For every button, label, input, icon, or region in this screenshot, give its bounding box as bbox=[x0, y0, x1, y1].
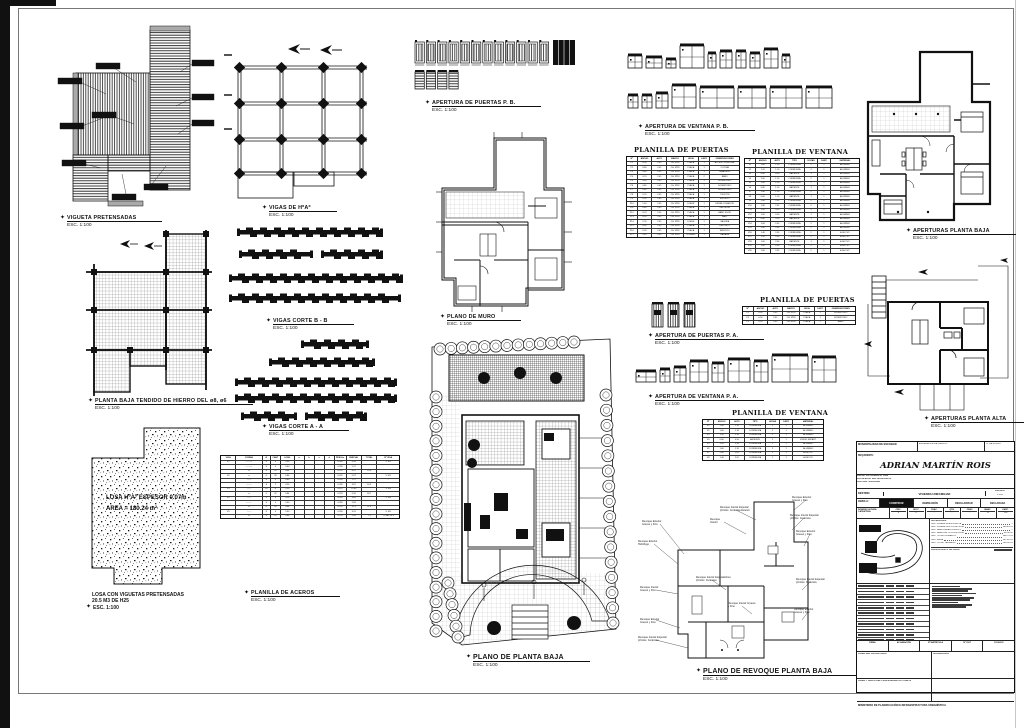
table-cell: ALUMINIO bbox=[830, 209, 859, 213]
table-cell: 8 bbox=[262, 483, 270, 487]
drawing-sheet: ✦ VIGUETA PRETENSADAS ESC. 1:100 ✦ VIGAS… bbox=[0, 0, 1024, 728]
table-cell: P14 bbox=[627, 220, 637, 224]
table-cell: 2 bbox=[765, 447, 779, 451]
table-cell: 0.50 bbox=[729, 438, 744, 442]
table-cell: ALUMINIO bbox=[830, 186, 859, 190]
table-cell bbox=[304, 479, 314, 483]
table-cell bbox=[314, 497, 324, 501]
caption-title: VIGAS CORTE B - B bbox=[273, 318, 354, 325]
table-cell bbox=[314, 506, 324, 510]
table-cell: 1 bbox=[817, 240, 830, 244]
table-cell: SERVICIO bbox=[709, 229, 739, 233]
proyectista-label: FIRMA Y SELLO DEL PROFESIONAL ACTUANTE bbox=[858, 680, 930, 683]
table-cell: CORREDIZA bbox=[744, 434, 766, 438]
marker-icon: ✦ bbox=[425, 100, 430, 106]
table-cell: P13 bbox=[627, 216, 637, 220]
caption-aperturas-pb: ✦ APERTURAS PLANTA BAJA ESC. 1:100 bbox=[906, 228, 1016, 241]
table-cell: 6 bbox=[262, 506, 270, 510]
revoque-annotation: Revoque Interior Especial p/Coloc. Cerám… bbox=[720, 506, 750, 512]
table-cell: 1 bbox=[814, 321, 826, 325]
table-cell: 1 bbox=[698, 216, 710, 220]
table-cell: 0.80 bbox=[637, 184, 652, 188]
marker-icon: ✦ bbox=[262, 205, 267, 211]
table-cell bbox=[361, 501, 376, 505]
table-cell: BATIENTE bbox=[784, 173, 804, 177]
table-cell bbox=[361, 465, 376, 469]
table-cell: ACCESO PRINCIPAL bbox=[709, 162, 739, 166]
obra-option-construir: CONSTRUIR bbox=[880, 499, 914, 507]
table-cell: 2 bbox=[804, 249, 817, 253]
apertura-puertas-pb bbox=[413, 36, 583, 96]
caption-aperturas-pa: ✦ APERTURAS PLANTA ALTA ESC. 1:100 bbox=[924, 416, 1024, 429]
table-cell: 0.60 bbox=[755, 195, 770, 199]
plano-planta-baja-site bbox=[424, 333, 624, 651]
table-cell bbox=[324, 470, 334, 474]
table-cell: CH. Nº18 bbox=[782, 312, 799, 316]
table-cell: 1.60 bbox=[755, 164, 770, 168]
table-cell: 1 bbox=[817, 231, 830, 235]
table-cell bbox=[314, 515, 324, 519]
planilla-ventana-pa-table: NºANCHOALTOTIPOHOJASCANT.MATERIALV11.601… bbox=[702, 419, 824, 461]
table-cell: TOTAL 69.3 bbox=[376, 515, 399, 519]
caption-title: PLANTA BAJA TENDIDO DE HIERRO DEL ø8, ø6 bbox=[95, 398, 253, 405]
table-cell: V9 bbox=[745, 200, 755, 204]
municipality-label: MUNICIPALIDAD DE ESCOBAR bbox=[857, 442, 918, 451]
table-cell: 1 bbox=[779, 447, 793, 451]
table-cell: 0.90 bbox=[637, 216, 652, 220]
table-cell: 1.10 bbox=[770, 168, 784, 172]
table-cell: 6 bbox=[262, 474, 270, 478]
table-cell: CH. Nº18 bbox=[666, 171, 683, 175]
table-cell: 1 bbox=[698, 162, 710, 166]
table-header-cell: HOJA bbox=[683, 157, 698, 161]
table-cell: 0.80 bbox=[637, 225, 652, 229]
caption-title: APERTURA DE VENTANA P. A. bbox=[655, 394, 764, 401]
table-cell: ALUMINIO bbox=[830, 227, 859, 231]
table-cell bbox=[324, 461, 334, 465]
table-cell: P9 bbox=[627, 198, 637, 202]
table-cell bbox=[314, 510, 324, 514]
table-cell bbox=[324, 483, 334, 487]
table-cell: 4 bbox=[270, 510, 280, 514]
table-cell: 0.90 bbox=[753, 316, 768, 320]
table-cell: V6 bbox=[745, 186, 755, 190]
table-header-cell: Nº VIGA bbox=[376, 456, 399, 460]
table-cell: 2 bbox=[765, 443, 779, 447]
table-header-cell: HOJAS bbox=[804, 159, 817, 163]
planilla-ventana-pa-title: PLANILLA DE VENTANA bbox=[732, 409, 828, 417]
table-cell: ⌐——⌐ bbox=[235, 465, 261, 469]
table-cell: V7 bbox=[703, 452, 713, 456]
table-cell: 1 bbox=[817, 209, 830, 213]
nomenclatura-cell: SECC.F bbox=[908, 508, 926, 518]
table-cell: CH. Nº18 bbox=[666, 180, 683, 184]
table-cell: ALUMINIO bbox=[830, 200, 859, 204]
table-cell: CH. Nº18 bbox=[666, 189, 683, 193]
table-cell: 8 bbox=[262, 465, 270, 469]
table-cell bbox=[294, 510, 304, 514]
table-cell: V5 bbox=[703, 443, 713, 447]
caption-scale: ESC. 1:100 bbox=[67, 223, 162, 228]
table-cell: 1.10 bbox=[729, 434, 744, 438]
nomenclatura-cell: CHAC.- bbox=[926, 508, 944, 518]
table-cell bbox=[294, 492, 304, 496]
table-cell: 2.60 bbox=[280, 510, 294, 514]
table-cell bbox=[294, 461, 304, 465]
table-cell: 1.10 bbox=[770, 182, 784, 186]
table-cell: CORREDIZA bbox=[784, 245, 804, 249]
table-cell: 1 bbox=[779, 434, 793, 438]
table-cell: V11 bbox=[745, 209, 755, 213]
table-cell bbox=[304, 465, 314, 469]
table-cell: CORREDIZA bbox=[744, 452, 766, 456]
caption-scale: ESC. 1:100 bbox=[269, 213, 337, 218]
table-cell: 2.05 bbox=[651, 162, 666, 166]
table-cell: ALUMINIO bbox=[792, 425, 823, 429]
table-cell: V2 bbox=[221, 474, 235, 478]
table-cell bbox=[324, 465, 334, 469]
table-cell: PLACA bbox=[683, 193, 698, 197]
table-cell: CORREDIZA bbox=[784, 236, 804, 240]
table-cell: ... bbox=[376, 501, 399, 505]
table-cell: 1.20 bbox=[713, 434, 729, 438]
firma-header: FIRMA bbox=[857, 641, 889, 651]
table-cell bbox=[221, 465, 235, 469]
table-cell: 16.3 bbox=[361, 483, 376, 487]
apertura-ventana-pa bbox=[634, 352, 846, 392]
table-cell: CORREDIZA bbox=[744, 456, 766, 460]
table-cell: 1.20 bbox=[713, 443, 729, 447]
table-cell: —— bbox=[235, 510, 261, 514]
table-cell: P12 bbox=[627, 211, 637, 215]
table-cell: 1 bbox=[698, 180, 710, 184]
table-cell: 1.00 bbox=[755, 240, 770, 244]
table-cell: 2.05 bbox=[770, 200, 784, 204]
table-cell: CORREDIZA bbox=[784, 164, 804, 168]
table-cell: 1 bbox=[804, 218, 817, 222]
table-cell: BAÑO bbox=[825, 321, 855, 325]
table-cell: 2.05 bbox=[651, 211, 666, 215]
table-cell: 1 bbox=[817, 236, 830, 240]
table-cell: 0.222 bbox=[334, 515, 346, 519]
caption-corte-aa: ✦ VIGAS CORTE A - A ESC. 1:100 bbox=[262, 424, 349, 437]
table-cell: PLACA bbox=[683, 166, 698, 170]
table-cell: CH. Nº18 bbox=[666, 162, 683, 166]
caption-vigueta: ✦ VIGUETA PRETENSADAS ESC. 1:100 bbox=[60, 215, 162, 228]
marker-icon: ✦ bbox=[466, 654, 471, 660]
table-cell: V8 bbox=[745, 195, 755, 199]
table-cell: ALUMINIO bbox=[830, 177, 859, 181]
table-cell: PLACA bbox=[683, 211, 698, 215]
table-cell: 0.395 bbox=[334, 461, 346, 465]
caption-title: APERTURA DE PUERTAS P. B. bbox=[432, 100, 541, 107]
table-cell: P17 bbox=[627, 234, 637, 238]
table-header-cell: c bbox=[314, 456, 324, 460]
table-cell bbox=[324, 515, 334, 519]
table-header-cell: CANT. bbox=[817, 159, 830, 163]
table-cell: 1 bbox=[817, 227, 830, 231]
table-cell: 1 bbox=[779, 452, 793, 456]
table-cell bbox=[314, 479, 324, 483]
table-cell: 2 bbox=[698, 175, 710, 179]
table-cell: A DE PVC bbox=[792, 452, 823, 456]
table-cell: P10 bbox=[627, 202, 637, 206]
table-cell bbox=[324, 488, 334, 492]
table-cell: 0.70 bbox=[637, 211, 652, 215]
table-cell: TOILETTE bbox=[709, 193, 739, 197]
table-header-cell: ANCHO bbox=[753, 307, 768, 311]
table-cell: 2.05 bbox=[651, 189, 666, 193]
table-cell: A DE PVC bbox=[830, 245, 859, 249]
table-cell: PLACA bbox=[683, 189, 698, 193]
table-cell: 10 bbox=[262, 488, 270, 492]
table-header-cell: FORMA bbox=[235, 456, 261, 460]
table-cell: 0.50 bbox=[770, 209, 784, 213]
table-cell: 32 bbox=[270, 492, 280, 496]
table-cell: 1 bbox=[817, 204, 830, 208]
table-cell: P11 bbox=[627, 207, 637, 211]
table-cell: V 101 bbox=[376, 461, 399, 465]
table-cell: 4 bbox=[270, 488, 280, 492]
caption-title: VIGAS CORTE A - A bbox=[269, 424, 349, 431]
table-cell: ESTUDIO bbox=[709, 198, 739, 202]
table-cell: 2.05 bbox=[767, 312, 782, 316]
table-cell bbox=[294, 488, 304, 492]
table-cell bbox=[324, 497, 334, 501]
revoque-annotation: Revoque Interior Grueso y Fino bbox=[728, 602, 755, 608]
table-cell: DORMITORIO bbox=[825, 316, 855, 320]
table-cell: 12.83 bbox=[346, 488, 361, 492]
table-cell: 0.90 bbox=[637, 229, 652, 233]
table-cell bbox=[294, 497, 304, 501]
table-cell: 1.10 bbox=[729, 443, 744, 447]
table-cell: 6 bbox=[262, 515, 270, 519]
table-cell: 4 bbox=[270, 461, 280, 465]
table-cell: V20 bbox=[745, 249, 755, 253]
table-cell: 1 bbox=[814, 316, 826, 320]
table-cell: CORREDIZA bbox=[784, 200, 804, 204]
table-cell bbox=[294, 515, 304, 519]
table-cell: 1 bbox=[817, 245, 830, 249]
table-cell bbox=[304, 497, 314, 501]
table-header-cell: ANCHO bbox=[713, 420, 729, 424]
table-cell: 1.10 bbox=[770, 164, 784, 168]
table-cell: 2 bbox=[804, 236, 817, 240]
revoque-annotation: Revoque Exterior Grueso y Fino bbox=[794, 608, 813, 614]
caption-scale: ESC. 1:100 bbox=[473, 663, 590, 668]
table-cell: ▭ bbox=[235, 470, 261, 474]
caption-title: VIGAS DE HºAº bbox=[269, 205, 337, 212]
table-cell: 0.84 bbox=[280, 470, 294, 474]
table-cell: 2 bbox=[804, 227, 817, 231]
table-header-cell: Nº bbox=[745, 159, 755, 163]
propietario-label: FIRMA DEL PROPIETARIO bbox=[858, 653, 930, 656]
table-cell: P5 bbox=[627, 180, 637, 184]
table-cell: ALUMINIO bbox=[830, 204, 859, 208]
plano-num-label: Nº DE PLANO bbox=[986, 443, 1013, 446]
table-cell: V2 bbox=[745, 168, 755, 172]
plano-revoque-wrap: Revoque Exterior Grueso y FinoRevoque Ex… bbox=[636, 490, 858, 678]
aprobacion-label: APROBACIÓN bbox=[933, 653, 1013, 656]
table-cell: 1 bbox=[817, 182, 830, 186]
caption-vigas-hoao: ✦ VIGAS DE HºAº ESC. 1:100 bbox=[262, 205, 337, 218]
table-header-cell: MARCO bbox=[666, 157, 683, 161]
table-header-cell: ALTO bbox=[729, 420, 744, 424]
table-cell: 0.80 bbox=[637, 171, 652, 175]
table-cell: 0.80 bbox=[637, 180, 652, 184]
table-cell: 3.73 bbox=[346, 506, 361, 510]
table-cell: V14 bbox=[745, 222, 755, 226]
caption-tendido: ✦ PLANTA BAJA TENDIDO DE HIERRO DEL ø8, … bbox=[88, 398, 253, 411]
table-cell: 2.05 bbox=[770, 231, 784, 235]
revoque-annotation: Revoque Interior Especial p/Coloc. Cerám… bbox=[796, 578, 825, 584]
expediente-label: EXPEDIENTE DE OBRA Nº bbox=[919, 443, 983, 446]
table-cell bbox=[221, 470, 235, 474]
table-cell: ▭ bbox=[235, 506, 261, 510]
table-header-cell: OBSERVACIONES bbox=[825, 307, 855, 311]
table-cell: PLACA bbox=[683, 198, 698, 202]
table-cell: 4.10 bbox=[346, 510, 361, 514]
table-cell: 1 bbox=[698, 184, 710, 188]
table-cell: V1 bbox=[221, 461, 235, 465]
table-cell bbox=[294, 470, 304, 474]
table-cell bbox=[294, 479, 304, 483]
table-cell: 2.05 bbox=[729, 456, 744, 460]
marker-icon: ✦ bbox=[86, 604, 91, 610]
table-cell: 2 bbox=[765, 425, 779, 429]
table-cell: CH. Nº18 bbox=[666, 216, 683, 220]
table-cell bbox=[294, 483, 304, 487]
revoque-annotation: Revoque Exterior Grueso y Fino bbox=[642, 520, 661, 526]
table-cell: CH. Nº18 bbox=[782, 316, 799, 320]
table-cell: 1.60 bbox=[637, 202, 652, 206]
table-header-cell: ALTO bbox=[770, 159, 784, 163]
table-cell: 1.60 bbox=[755, 245, 770, 249]
table-header-cell: Nº bbox=[743, 307, 753, 311]
table-cell: V6 bbox=[703, 447, 713, 451]
table-cell: 2 bbox=[804, 231, 817, 235]
table-cell: 1.20 bbox=[755, 209, 770, 213]
table-cell: 0.60 bbox=[755, 173, 770, 177]
table-cell bbox=[324, 501, 334, 505]
table-cell bbox=[304, 501, 314, 505]
table-cell: 1 bbox=[814, 312, 826, 316]
table-cell bbox=[361, 497, 376, 501]
caption-title: APERTURA DE VENTANA P. B. bbox=[645, 124, 754, 131]
marker-icon: ✦ bbox=[88, 398, 93, 404]
caption-planta-baja: ✦ PLANO DE PLANTA BAJA ESC. 1:100 bbox=[466, 654, 590, 668]
caption-scale: ESC. 1:100 bbox=[913, 236, 1016, 241]
table-cell: 1 bbox=[765, 438, 779, 442]
caption-scale: ESC. 1:100 bbox=[269, 432, 349, 437]
table-cell: 4 bbox=[270, 465, 280, 469]
table-cell: 1 bbox=[817, 249, 830, 253]
table-cell: V18 bbox=[745, 240, 755, 244]
table-cell bbox=[294, 465, 304, 469]
table-cell: 1 bbox=[817, 218, 830, 222]
table-cell: 2.05 bbox=[651, 171, 666, 175]
table-cell: 2.05 bbox=[651, 225, 666, 229]
scan-edge-top bbox=[0, 0, 56, 6]
table-cell: CH. Nº18 bbox=[666, 202, 683, 206]
table-cell: 0.222 bbox=[334, 506, 346, 510]
table-cell: 1.00 bbox=[713, 447, 729, 451]
table-cell: P1 bbox=[627, 162, 637, 166]
table-cell: V10 bbox=[745, 204, 755, 208]
table-cell: 16 bbox=[270, 515, 280, 519]
table-cell: ⌐—— bbox=[235, 501, 261, 505]
table-header-cell: Ø bbox=[262, 456, 270, 460]
table-cell: 6 bbox=[262, 470, 270, 474]
table-cell: 7.27 bbox=[346, 479, 361, 483]
caption-title: PLANO DE PLANTA BAJA bbox=[473, 654, 590, 662]
table-cell: 1 bbox=[698, 229, 710, 233]
table-cell: BATIENTE bbox=[784, 218, 804, 222]
obra-option-demolición: DEMOLICIÓN bbox=[914, 499, 948, 507]
tendido-hierro-plan bbox=[80, 230, 222, 396]
table-cell: V8 bbox=[703, 456, 713, 460]
table-cell: V4 bbox=[221, 497, 235, 501]
table-cell: 8 bbox=[262, 497, 270, 501]
caption-losa: LOSA CON VIGUETAS PRETENSADAS 20.5 M3 DE… bbox=[92, 592, 184, 605]
table-cell: 2.00 bbox=[755, 177, 770, 181]
ministry-label: MINISTERIO DE PLANIFICACIÓN E INFRAESTRU… bbox=[858, 704, 946, 707]
table-header-cell: PESO/m bbox=[334, 456, 346, 460]
table-cell: 0.80 bbox=[637, 207, 652, 211]
table-cell: 1 bbox=[817, 164, 830, 168]
table-cell bbox=[304, 515, 314, 519]
table-cell: 1 bbox=[698, 202, 710, 206]
marker-icon: ✦ bbox=[696, 668, 701, 674]
table-cell: 1.10 bbox=[729, 425, 744, 429]
table-cell: 0.84 bbox=[280, 515, 294, 519]
table-cell: ... bbox=[376, 479, 399, 483]
table-cell: 0.395 bbox=[334, 479, 346, 483]
table-cell: ALUMINIO bbox=[830, 182, 859, 186]
planilla-ventana-pb-table: NºANCHOALTOTIPOHOJASCANT.MATERIALV11.601… bbox=[744, 158, 860, 254]
table-cell: P4 bbox=[627, 175, 637, 179]
table-cell: 0.395 bbox=[334, 497, 346, 501]
table-cell: V5 bbox=[745, 182, 755, 186]
table-cell bbox=[324, 510, 334, 514]
table-cell: 3.40 bbox=[280, 501, 294, 505]
table-cell: PLACA bbox=[799, 316, 814, 320]
planilla-puertas-pb-table: NºANCHOALTOMARCOHOJACANT.OBSERVACIONESP1… bbox=[626, 156, 740, 238]
table-cell bbox=[304, 488, 314, 492]
destino-value: VIVIENDA UNIFAMILIAR bbox=[884, 491, 986, 496]
table-cell: 0.50 bbox=[770, 173, 784, 177]
table-cell: V3 bbox=[703, 434, 713, 438]
table-cell: 1 bbox=[698, 198, 710, 202]
table-cell: 3.90 bbox=[280, 461, 294, 465]
caption-title: APERTURAS PLANTA BAJA bbox=[913, 228, 1016, 235]
marker-icon: ✦ bbox=[262, 424, 267, 430]
table-cell: 1.20 bbox=[755, 236, 770, 240]
table-cell: 1 bbox=[817, 213, 830, 217]
table-cell: 2.00 bbox=[713, 452, 729, 456]
table-cell: 5.37 bbox=[346, 465, 361, 469]
table-cell: ⌐——⌐ bbox=[235, 461, 261, 465]
table-cell bbox=[294, 501, 304, 505]
table-cell: 1 bbox=[817, 168, 830, 172]
table-cell: 0.395 bbox=[334, 483, 346, 487]
table-cell: 1.80 bbox=[755, 249, 770, 253]
table-cell: P16 bbox=[627, 229, 637, 233]
table-cell: 0.395 bbox=[334, 510, 346, 514]
table-cell: 2.68 bbox=[346, 501, 361, 505]
table-cell: 8 bbox=[262, 479, 270, 483]
firma-header: Nº CUIT bbox=[952, 641, 984, 651]
